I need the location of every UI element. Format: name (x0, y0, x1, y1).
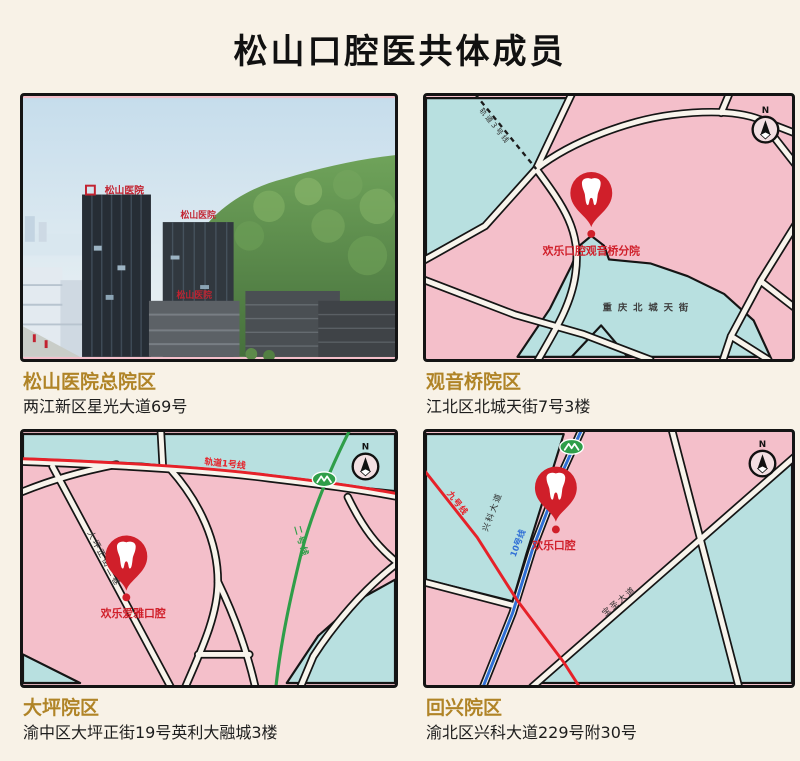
guanyinqiao-map: 轨道3号线 重庆北城天街 欢乐口腔观音桥分院 (426, 96, 792, 359)
campus-address: 两江新区星光大道69号 (23, 397, 398, 417)
campus-name: 回兴院区 (426, 697, 795, 721)
poster: 松山口腔医共体成员 (0, 0, 800, 761)
daping-map: 大坪正街二巷 轨道1号线 二号线 (23, 432, 395, 685)
pin-label: 欢乐口腔观音桥分院 (542, 244, 641, 258)
pin-dot (552, 526, 560, 534)
rooftop-sign-text: 松山医院 (180, 209, 216, 221)
page-title: 松山口腔医共体成员 (0, 0, 800, 73)
rooftop-sign-text: 松山医院 (177, 289, 213, 301)
campus-name: 松山医院总院区 (23, 371, 398, 395)
map-panel-huixing: 兴科大道 宝圣大道 10号线 九号线 (423, 429, 795, 688)
tower-one: 松山医院 (82, 184, 151, 357)
photo-panel-main-campus: 松山医院 松山医院 (20, 93, 398, 362)
compass-n: N (759, 440, 766, 450)
caption-guanyinqiao: 观音桥院区 江北区北城天街7号3楼 (423, 362, 795, 429)
area-label: 重庆北城天街 (603, 302, 694, 314)
compass-n: N (362, 443, 369, 453)
caption-main-campus: 松山医院总院区 两江新区星光大道69号 (20, 362, 398, 429)
pin-dot (587, 230, 595, 238)
caption-daping: 大坪院区 渝中区大坪正街19号英利大融城3楼 (20, 688, 398, 743)
campus-address: 渝中区大坪正街19号英利大融城3楼 (23, 723, 398, 743)
map-panel-guanyinqiao: 轨道3号线 重庆北城天街 欢乐口腔观音桥分院 (423, 93, 795, 362)
map-panel-daping: 大坪正街二巷 轨道1号线 二号线 (20, 429, 398, 688)
campus-name: 观音桥院区 (426, 371, 795, 395)
metro-logo-icon (560, 439, 584, 454)
annex-buildings (245, 291, 395, 359)
campus-address: 江北区北城天街7号3楼 (426, 397, 795, 417)
rooftop-sign-text: 松山医院 (105, 184, 144, 197)
hospital-photo: 松山医院 松山医院 (23, 96, 395, 359)
caption-huixing: 回兴院区 渝北区兴科大道229号附30号 (423, 688, 795, 743)
huixing-map: 兴科大道 宝圣大道 10号线 九号线 (426, 432, 792, 685)
metro-logo-icon (312, 472, 336, 487)
campus-address: 渝北区兴科大道229号附30号 (426, 723, 795, 743)
pin-dot (122, 593, 130, 601)
compass-n: N (762, 106, 769, 116)
campus-name: 大坪院区 (23, 697, 398, 721)
pin-label: 欢乐口腔 (531, 538, 575, 552)
panel-grid: 松山医院 松山医院 (0, 93, 800, 743)
pin-label: 欢乐爱雅口腔 (100, 606, 166, 620)
